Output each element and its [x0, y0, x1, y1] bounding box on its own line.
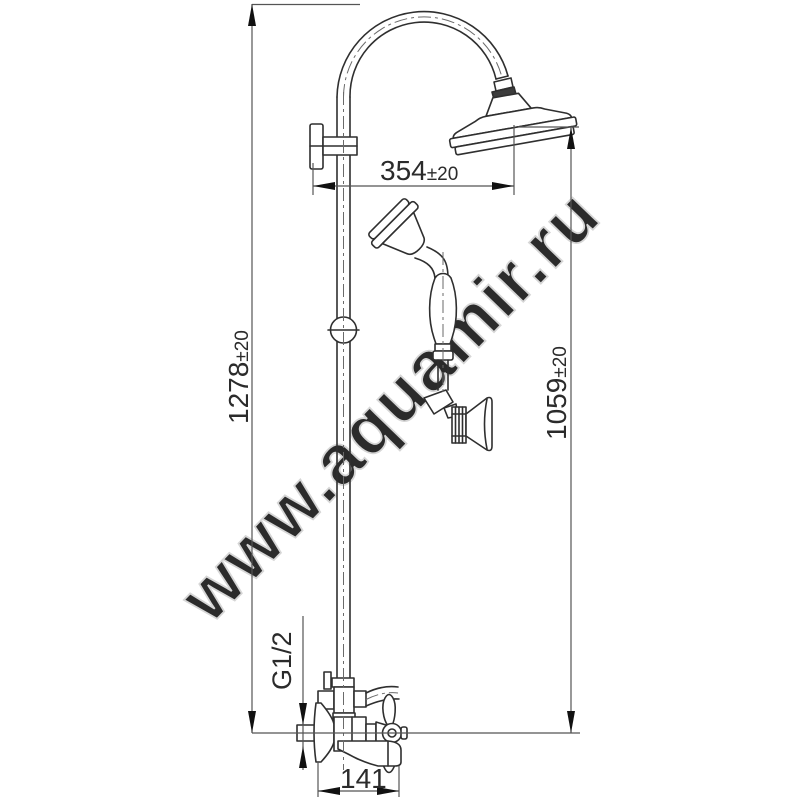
label-thread: G1/2 [267, 631, 297, 690]
arrow-left-icon [313, 182, 335, 190]
arrow-up-icon [248, 4, 256, 26]
label-total-height: 1278±20 [223, 330, 254, 424]
arrow-right-icon [492, 182, 514, 190]
arc-centerline [344, 17, 503, 97]
diverter-knob [324, 672, 331, 689]
arrow-down-icon [299, 703, 307, 725]
overhead-shower-head [444, 84, 579, 155]
shower-system-technical-drawing: www.aquamir.ru [0, 0, 800, 800]
arrow-down-icon [567, 711, 575, 733]
label-spout-length: 141 [340, 763, 387, 794]
cross-handle-top-arm [383, 695, 395, 727]
hand-shower-head [365, 195, 441, 271]
arrow-down-icon [248, 711, 256, 733]
drawing-svg: www.aquamir.ru [0, 0, 800, 800]
holder-cone [466, 398, 492, 451]
label-shower-height: 1059±20 [541, 346, 572, 440]
hand-shower-holder [424, 390, 492, 451]
label-arm-reach: 354±20 [380, 155, 458, 186]
arrow-left-icon [318, 787, 340, 795]
arrow-up-icon [299, 746, 307, 768]
shower-arm-arc [337, 12, 508, 97]
